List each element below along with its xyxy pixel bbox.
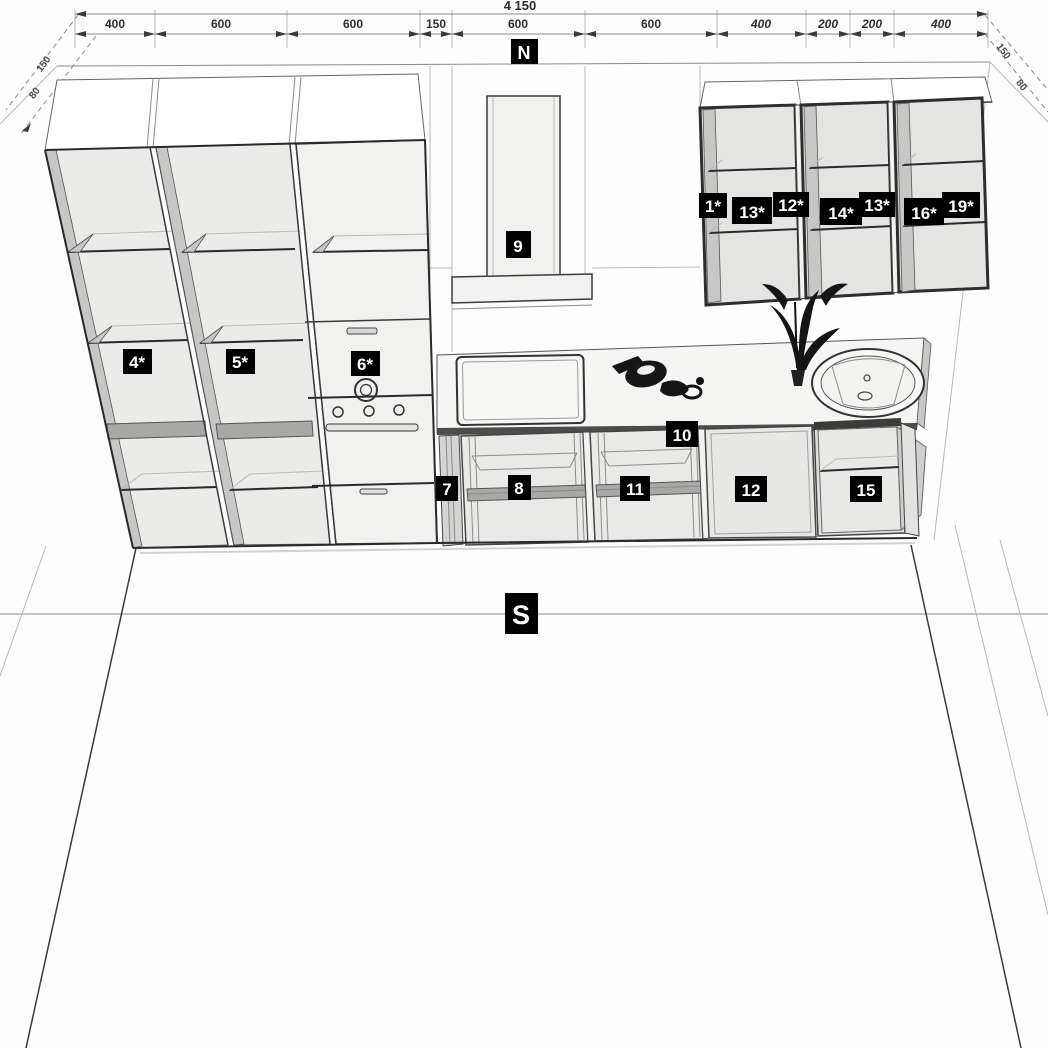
sink <box>812 349 924 417</box>
item-tag-9: 9 <box>506 231 531 258</box>
hob <box>456 355 584 425</box>
cabinet-handle <box>347 328 377 334</box>
dim-segment: 200 <box>817 17 838 31</box>
item-tag-19: 19* <box>942 192 980 218</box>
dim-total: 4 150 <box>504 0 537 13</box>
dim-segment: 400 <box>930 17 951 31</box>
item-tag-6: 6* <box>351 351 380 376</box>
dim-segment: 400 <box>750 17 771 31</box>
item-tag-10: 10 <box>666 421 698 447</box>
svg-text:10: 10 <box>673 426 692 445</box>
south-marker: S <box>505 593 538 634</box>
item-tag-15: 15 <box>850 476 882 502</box>
dim-segment: 400 <box>105 17 125 31</box>
svg-text:7: 7 <box>442 480 451 499</box>
svg-text:N: N <box>518 43 531 63</box>
item-tag-13b: 13* <box>859 192 895 217</box>
dim-segment: 600 <box>641 17 661 31</box>
svg-text:15: 15 <box>857 481 876 500</box>
tall-cabinets <box>45 74 437 548</box>
svg-text:1*: 1* <box>705 197 721 216</box>
svg-text:80: 80 <box>27 85 43 101</box>
svg-text:9: 9 <box>513 237 522 256</box>
svg-text:80: 80 <box>1013 78 1029 94</box>
svg-text:6*: 6* <box>357 355 373 374</box>
item-tag-14: 14* <box>820 198 862 225</box>
svg-text:11: 11 <box>626 480 644 499</box>
svg-text:4*: 4* <box>129 353 145 372</box>
svg-text:13*: 13* <box>739 203 765 222</box>
svg-text:8: 8 <box>514 479 523 498</box>
svg-text:150: 150 <box>35 54 54 74</box>
right-offset-dims: 150 80 <box>985 15 1048 112</box>
drawer-handle <box>360 489 387 494</box>
dim-segment: 600 <box>508 17 528 31</box>
svg-text:13*: 13* <box>864 196 890 215</box>
item-tag-4: 4* <box>123 349 152 374</box>
kitchen-3d-scene: 4 150 400 600 600 150 600 600 400 200 20… <box>0 0 1048 1048</box>
svg-text:19*: 19* <box>948 197 974 216</box>
item-tag-12-wall: 12* <box>773 192 809 217</box>
kitchen-3d-drawing: 4 150 400 600 600 150 600 600 400 200 20… <box>0 0 1048 1048</box>
item-tag-8: 8 <box>508 475 531 500</box>
item-tag-13: 13* <box>732 197 772 224</box>
svg-text:S: S <box>512 600 530 630</box>
north-marker: N <box>511 39 538 64</box>
svg-text:16*: 16* <box>911 204 937 223</box>
dim-segment: 600 <box>211 17 231 31</box>
svg-text:14*: 14* <box>828 204 854 223</box>
item-tag-16: 16* <box>904 198 944 225</box>
svg-text:12: 12 <box>742 481 761 500</box>
wall-cabinets <box>700 77 992 305</box>
item-tag-5: 5* <box>226 349 255 374</box>
dim-segment: 150 <box>426 17 446 31</box>
oven-handle <box>326 424 418 431</box>
dim-segment: 200 <box>861 17 882 31</box>
svg-text:12*: 12* <box>778 196 804 215</box>
worktop <box>437 284 931 436</box>
dim-segment: 600 <box>343 17 363 31</box>
cooker-hood <box>452 96 592 309</box>
item-tag-11: 11 <box>620 476 650 501</box>
item-tag-12-base: 12 <box>735 476 767 502</box>
svg-text:5*: 5* <box>232 353 248 372</box>
item-tag-7: 7 <box>436 476 458 501</box>
item-tag-1: 1* <box>699 193 727 218</box>
